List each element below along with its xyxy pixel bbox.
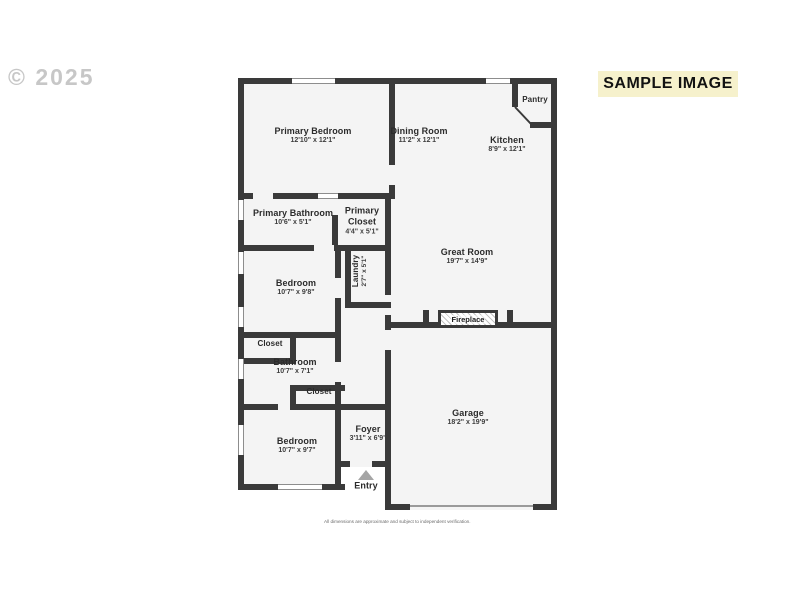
room-label-kitchen: Kitchen 8'9" x 12'1" [488,135,525,155]
garage-door-line [410,505,533,507]
window [238,307,244,327]
room-label-pantry: Pantry [522,95,548,105]
window [318,193,338,199]
room-label-primary-bathroom: Primary Bathroom 10'6" x 5'1" [253,208,333,228]
wall [512,84,518,107]
wall [334,245,391,251]
room-label-laundry: Laundry 2'7" x 5'1" [351,255,369,287]
window [238,359,244,379]
room-name: Primary Closet [338,205,386,228]
room-dims: 8'9" x 12'1" [488,146,525,155]
copyright-watermark: © 2025 [8,64,95,91]
fireplace: Fireplace [438,310,498,328]
room-label-closet-2: Closet [306,387,331,397]
room-name: Closet [306,387,331,397]
room-name: Entry [354,480,378,491]
window [238,200,244,220]
wall [423,310,429,322]
room-dims: 3'11" x 6'9" [350,435,387,444]
room-label-bathroom: Bathroom 10'7" x 7'1" [273,357,316,377]
fireplace-label: Fireplace [451,315,486,324]
room-dims: 10'6" x 5'1" [253,219,333,228]
wall [335,298,341,362]
window [278,484,322,490]
room-label-primary-closet: Primary Closet 4'4" x 5'1" [338,205,386,236]
room-dims: 11'2" x 12'1" [390,137,447,146]
room-label-primary-bedroom: Primary Bedroom 12'10" x 12'1" [274,126,351,146]
wall [335,404,341,490]
window [292,78,335,84]
wall [295,404,391,410]
room-label-closet-1: Closet [257,339,282,349]
entry-arrow-icon [358,470,374,480]
wall [273,193,318,199]
disclaimer: All dimensions are approximate and subje… [238,513,557,531]
room-label-bedroom-2: Bedroom 10'7" x 9'8" [276,278,316,298]
room-label-garage: Garage 18'2" x 19'9" [447,408,488,428]
room-name: Laundry [351,255,361,287]
room-dims: 4'4" x 5'1" [338,228,386,237]
room-name: Bathroom [273,357,316,368]
room-name: Dining Room [390,126,447,137]
room-dims: 2'7" x 5'1" [361,255,369,287]
room-name: Bedroom [277,436,317,447]
wall [385,315,391,322]
room-label-foyer: Foyer 3'11" x 6'9" [350,424,387,444]
room-dims: 10'7" x 7'1" [273,368,316,377]
room-dims: 10'7" x 9'8" [276,289,316,298]
room-label-great-room: Great Room 19'7" x 14'9" [441,247,494,267]
room-dims: 19'7" x 14'9" [441,258,494,267]
wall [322,484,345,490]
window [486,78,510,84]
wall [335,251,341,278]
wall [385,322,391,330]
sample-image-banner: SAMPLE IMAGE [598,71,738,97]
floor-plan: Fireplace Primary Bedroom 12'10" x 12'1"… [238,78,557,510]
wall [335,382,341,404]
room-name: Closet [257,339,282,349]
room-name: Great Room [441,247,494,258]
window [238,425,244,455]
room-name: Bedroom [276,278,316,289]
disclaimer-text: All dimensions are approximate and subje… [324,519,471,524]
wall [238,245,314,251]
wall [345,302,391,308]
wall [290,385,296,410]
room-dims: 18'2" x 19'9" [447,419,488,428]
wall [507,310,513,322]
room-name: Foyer [350,424,387,435]
wall [238,404,278,410]
wall [389,84,395,165]
room-name: Garage [447,408,488,419]
room-dims: 10'7" x 9'7" [277,447,317,456]
room-dims: 12'10" x 12'1" [274,137,351,146]
wall [238,484,278,490]
window [238,252,244,274]
room-name: Kitchen [488,135,525,146]
wall [340,461,350,467]
room-name: Pantry [522,95,548,105]
room-name: Primary Bathroom [253,208,333,219]
room-name: Primary Bedroom [274,126,351,137]
wall [551,78,557,510]
room-label-bedroom-3: Bedroom 10'7" x 9'7" [277,436,317,456]
room-label-dining-room: Dining Room 11'2" x 12'1" [390,126,447,146]
room-label-entry: Entry [354,480,378,491]
